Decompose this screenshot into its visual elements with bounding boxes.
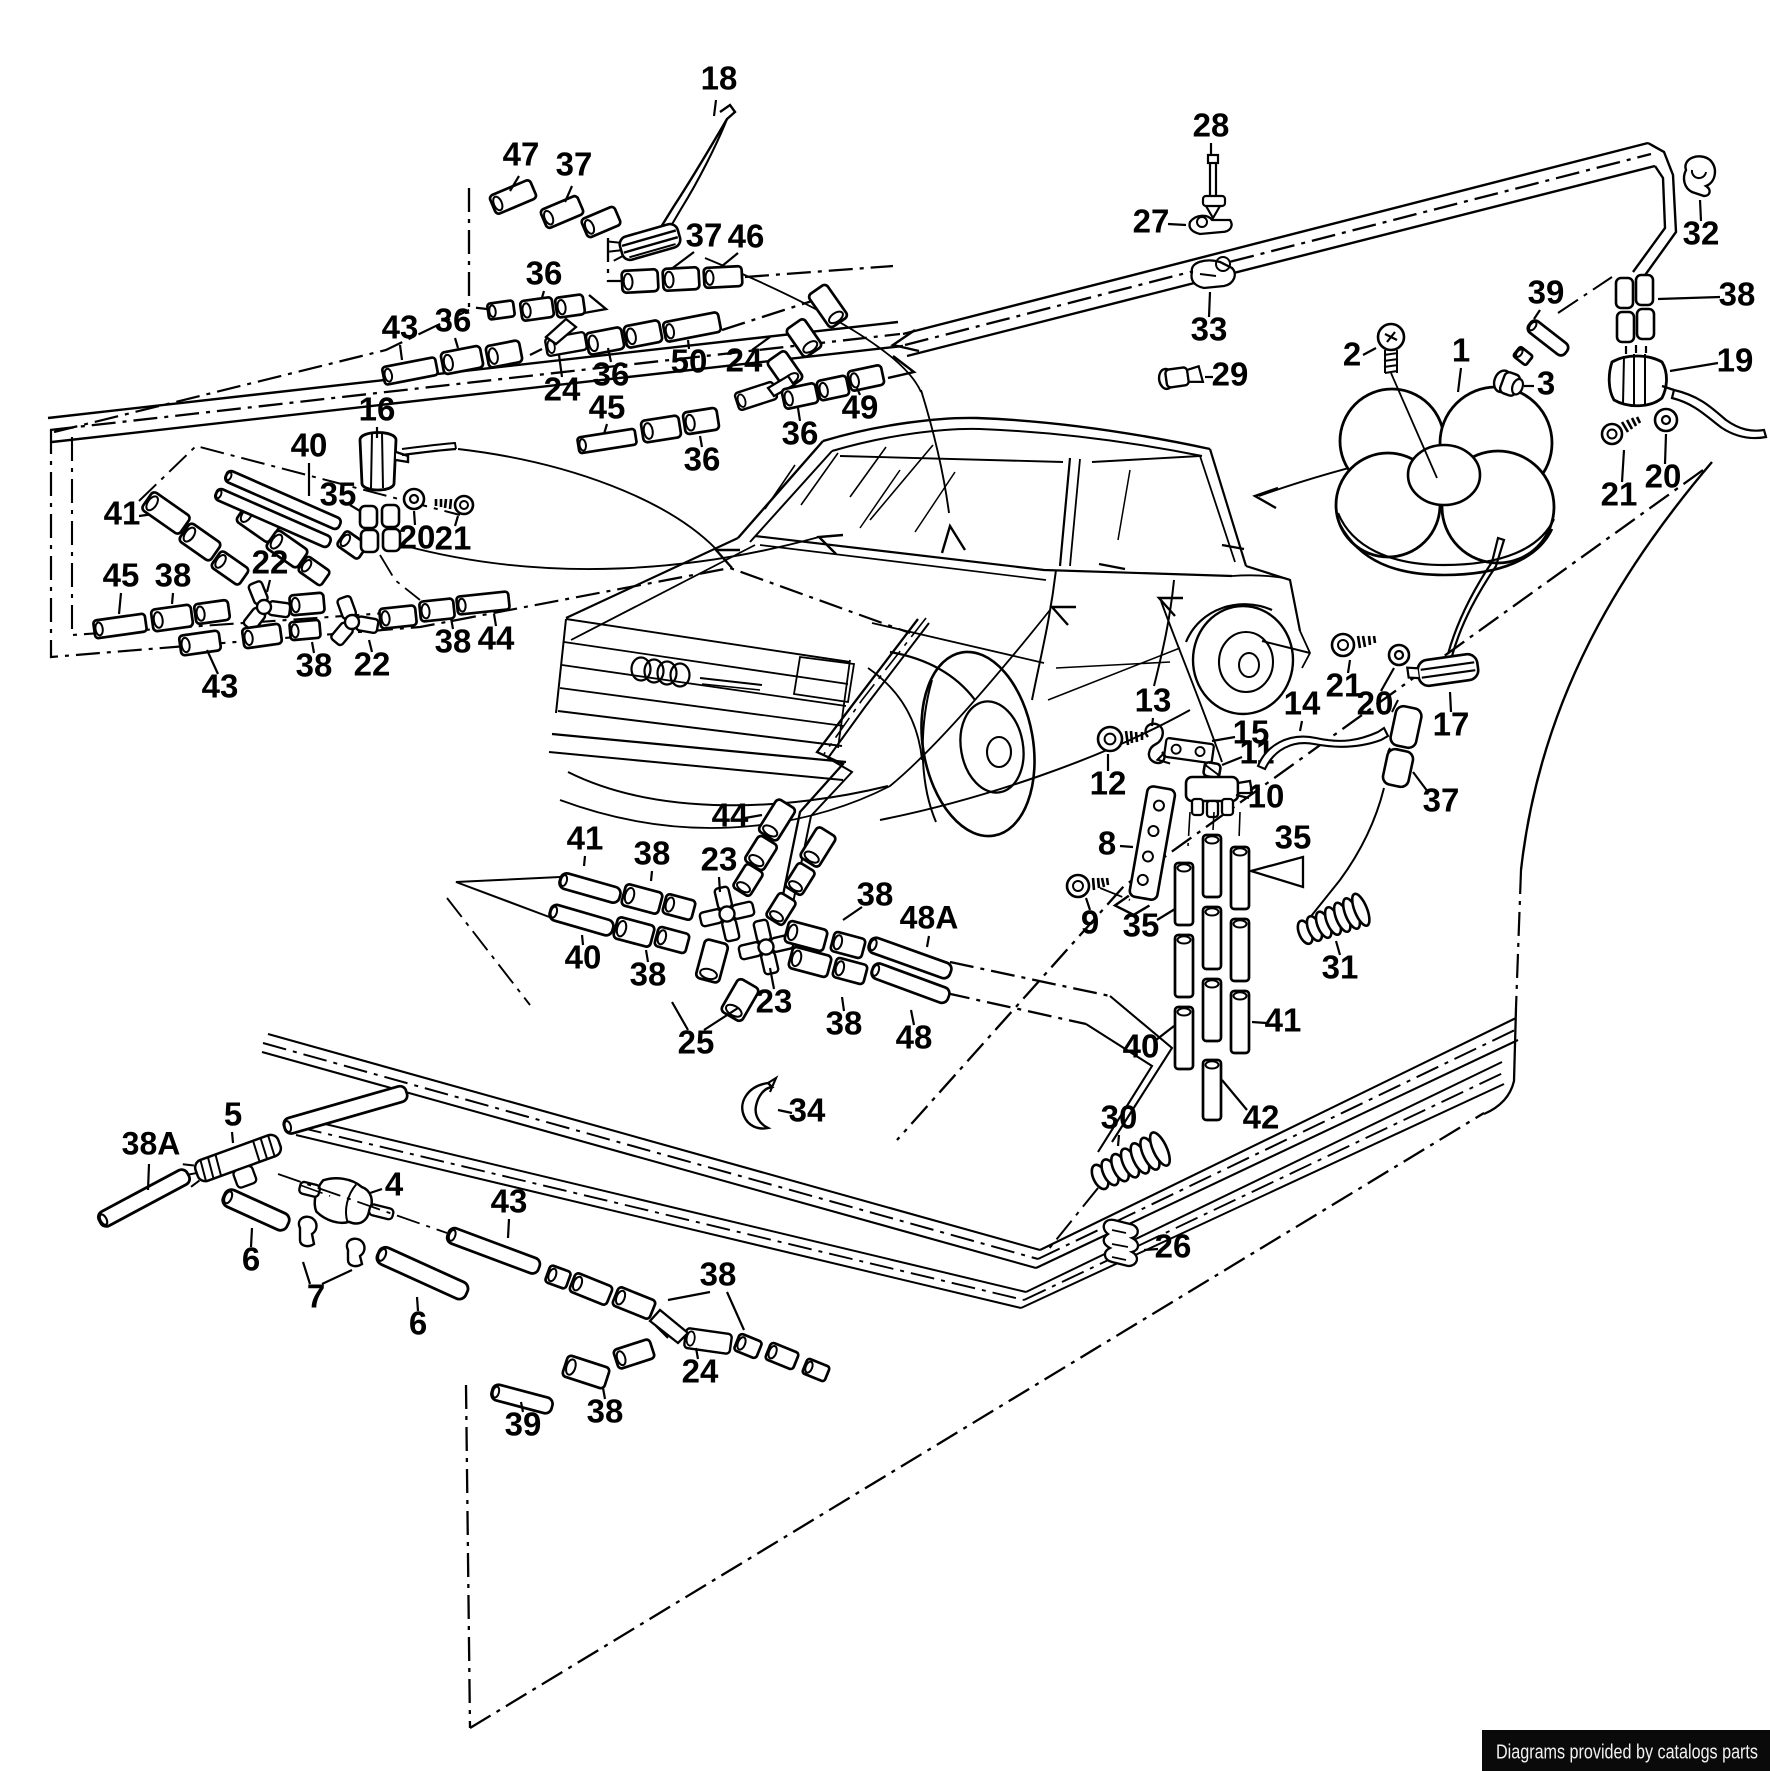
svg-text:22: 22 xyxy=(252,544,289,581)
svg-text:41: 41 xyxy=(104,495,141,532)
svg-text:44: 44 xyxy=(712,797,749,834)
svg-text:18: 18 xyxy=(701,60,738,97)
svg-text:16: 16 xyxy=(359,391,396,428)
svg-text:3: 3 xyxy=(1537,365,1555,402)
svg-text:Diagrams provided by catalogs: Diagrams provided by catalogs parts xyxy=(1496,1741,1758,1763)
svg-text:39: 39 xyxy=(1528,274,1565,311)
svg-text:41: 41 xyxy=(567,820,604,857)
svg-text:38A: 38A xyxy=(122,1125,181,1161)
svg-text:42: 42 xyxy=(1243,1099,1280,1136)
svg-text:37: 37 xyxy=(686,217,723,254)
svg-text:13: 13 xyxy=(1135,682,1172,719)
svg-text:41: 41 xyxy=(1265,1002,1302,1039)
svg-text:25: 25 xyxy=(678,1024,715,1061)
svg-text:43: 43 xyxy=(202,668,239,705)
svg-text:38: 38 xyxy=(634,835,671,872)
svg-text:14: 14 xyxy=(1284,685,1321,722)
svg-text:4: 4 xyxy=(385,1166,404,1203)
svg-text:28: 28 xyxy=(1193,107,1230,144)
svg-text:38: 38 xyxy=(857,876,894,913)
svg-text:10: 10 xyxy=(1248,778,1285,815)
svg-text:21: 21 xyxy=(435,520,472,557)
svg-text:47: 47 xyxy=(503,136,540,173)
svg-text:46: 46 xyxy=(728,218,765,255)
svg-text:29: 29 xyxy=(1212,356,1249,393)
svg-text:20: 20 xyxy=(399,519,436,556)
svg-text:19: 19 xyxy=(1717,342,1754,379)
svg-text:37: 37 xyxy=(1423,782,1460,819)
svg-text:5: 5 xyxy=(224,1096,242,1133)
svg-text:45: 45 xyxy=(103,557,140,594)
svg-text:43: 43 xyxy=(382,309,419,346)
svg-text:45: 45 xyxy=(589,389,626,426)
svg-text:34: 34 xyxy=(789,1092,826,1129)
svg-text:24: 24 xyxy=(682,1353,719,1390)
svg-text:40: 40 xyxy=(291,427,328,464)
svg-text:48A: 48A xyxy=(900,899,959,935)
svg-text:23: 23 xyxy=(701,841,738,878)
svg-text:43: 43 xyxy=(491,1183,528,1220)
svg-text:36: 36 xyxy=(526,255,563,292)
svg-text:38: 38 xyxy=(155,557,192,594)
svg-text:20: 20 xyxy=(1645,458,1682,495)
svg-text:21: 21 xyxy=(1601,476,1638,513)
svg-text:35: 35 xyxy=(320,476,357,513)
svg-text:1: 1 xyxy=(1452,332,1470,369)
svg-text:37: 37 xyxy=(556,146,593,183)
svg-text:26: 26 xyxy=(1155,1228,1192,1265)
svg-text:38: 38 xyxy=(700,1256,737,1293)
svg-text:8: 8 xyxy=(1098,825,1116,862)
svg-text:36: 36 xyxy=(435,302,472,339)
svg-text:35: 35 xyxy=(1123,907,1160,944)
svg-text:20: 20 xyxy=(1357,685,1394,722)
svg-text:40: 40 xyxy=(1123,1028,1160,1065)
svg-text:30: 30 xyxy=(1101,1099,1138,1136)
svg-text:27: 27 xyxy=(1133,203,1170,240)
svg-text:35: 35 xyxy=(1275,819,1312,856)
svg-text:38: 38 xyxy=(1719,276,1756,313)
svg-text:2: 2 xyxy=(1343,336,1361,373)
